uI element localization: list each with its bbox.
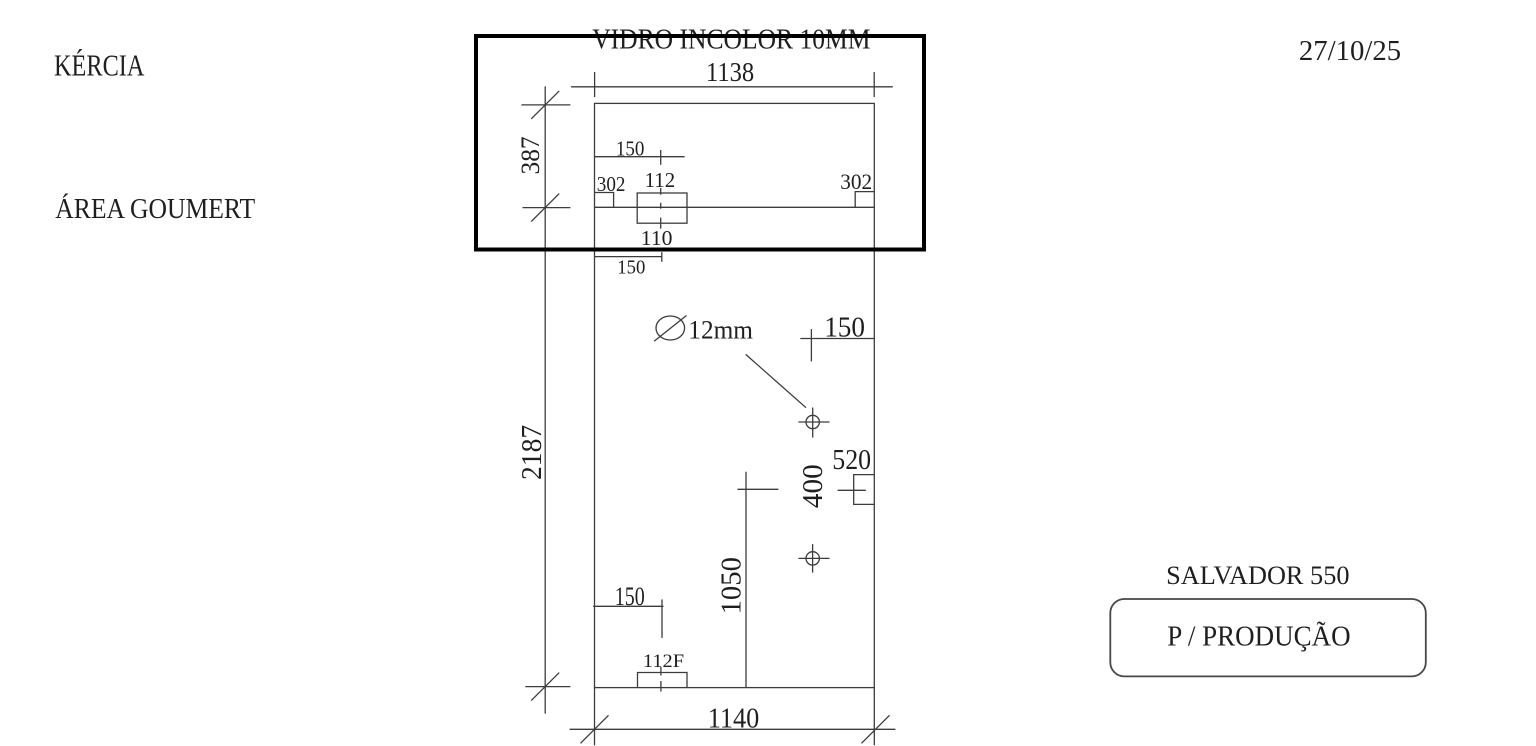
svg-text:150: 150 <box>615 582 645 611</box>
svg-text:1140: 1140 <box>708 704 760 735</box>
svg-text:VIDRO INCOLOR 10MM: VIDRO INCOLOR 10MM <box>592 25 870 56</box>
svg-text:P / PRODUÇÃO: P / PRODUÇÃO <box>1167 621 1350 653</box>
svg-text:110: 110 <box>641 226 673 250</box>
svg-text:112: 112 <box>645 168 676 192</box>
svg-text:150: 150 <box>617 257 645 279</box>
svg-text:1050: 1050 <box>717 557 748 614</box>
svg-text:12mm: 12mm <box>688 316 753 345</box>
svg-text:302: 302 <box>597 172 626 196</box>
svg-text:KÉRCIA: KÉRCIA <box>54 48 145 83</box>
svg-text:27/10/25: 27/10/25 <box>1299 35 1401 67</box>
svg-text:SALVADOR 550: SALVADOR 550 <box>1166 561 1349 590</box>
svg-text:387: 387 <box>516 136 545 174</box>
svg-text:112F: 112F <box>643 651 684 672</box>
svg-text:520: 520 <box>832 445 871 476</box>
svg-text:2187: 2187 <box>517 425 548 480</box>
svg-text:1138: 1138 <box>706 57 754 87</box>
svg-text:150: 150 <box>824 311 865 343</box>
svg-text:302: 302 <box>840 169 872 194</box>
svg-text:150: 150 <box>616 137 645 161</box>
svg-text:400: 400 <box>798 464 829 508</box>
svg-text:ÁREA GOUMERT: ÁREA GOUMERT <box>55 192 255 225</box>
